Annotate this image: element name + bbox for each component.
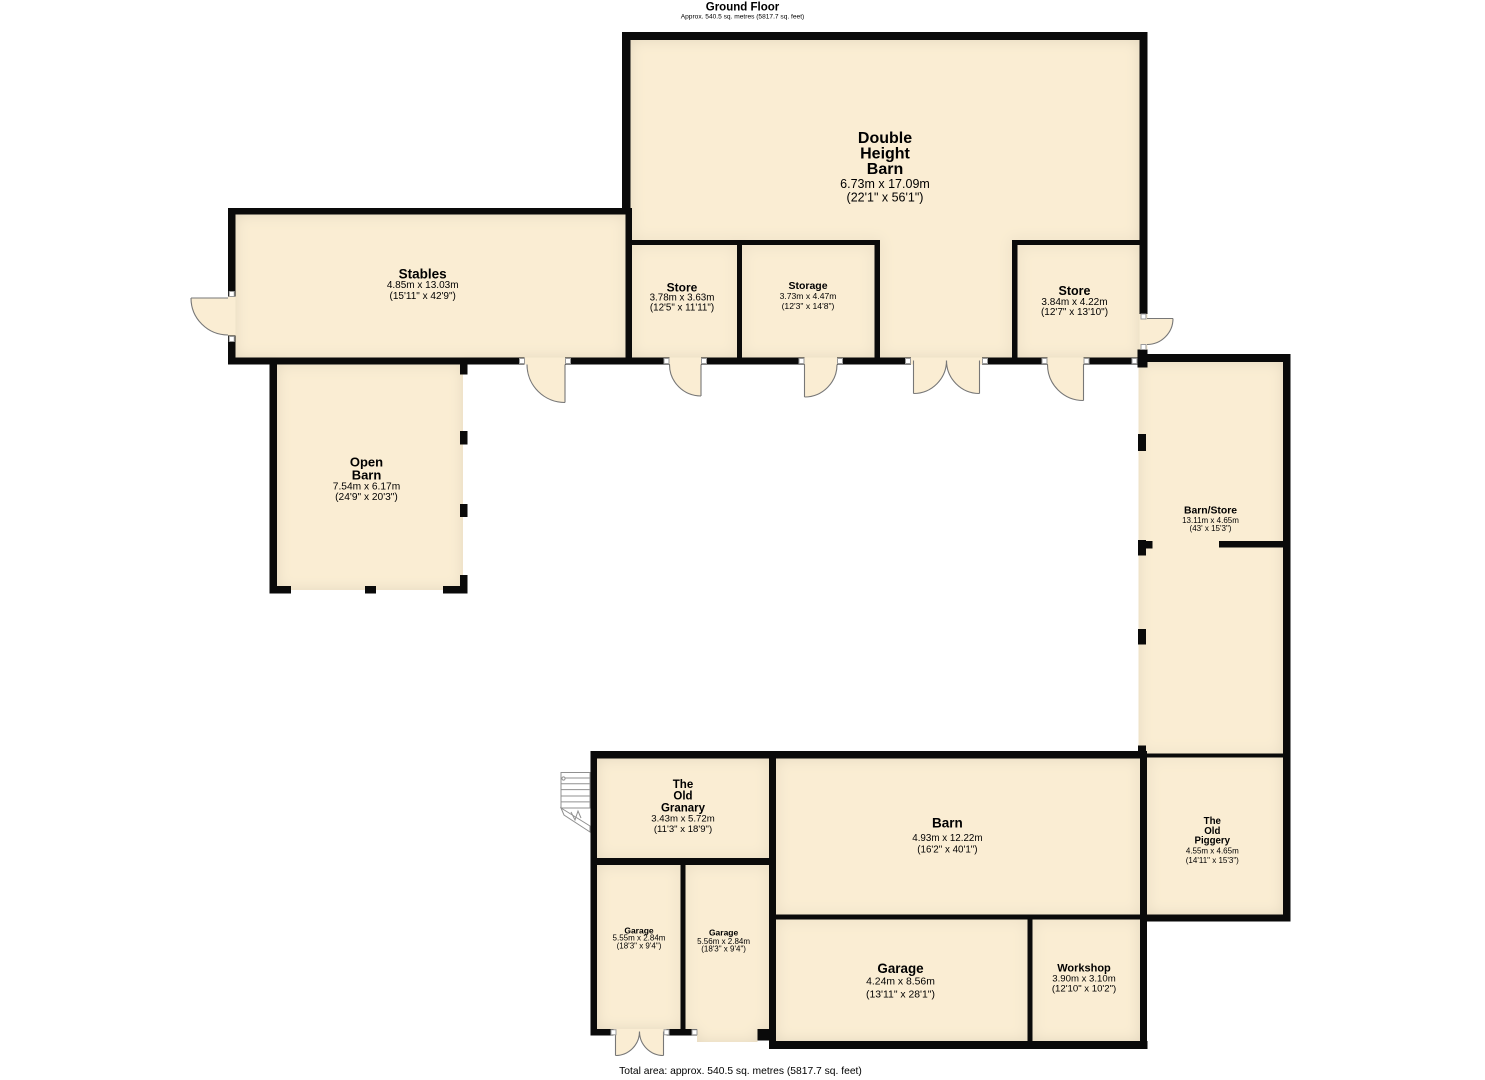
svg-text:Barn: Barn <box>932 815 963 830</box>
svg-text:Old: Old <box>673 791 692 803</box>
svg-text:Double: Double <box>858 130 912 147</box>
svg-text:3.73m x 4.47m: 3.73m x 4.47m <box>780 291 837 301</box>
svg-text:(13'11" x 28'1"): (13'11" x 28'1") <box>866 990 935 1001</box>
svg-text:4.93m x 12.22m: 4.93m x 12.22m <box>912 833 982 844</box>
svg-text:Piggery: Piggery <box>1195 835 1231 846</box>
svg-text:(43' x 15'3"): (43' x 15'3") <box>1190 524 1232 533</box>
svg-text:(16'2" x 40'1"): (16'2" x 40'1") <box>917 845 977 856</box>
svg-text:6.73m x 17.09m: 6.73m x 17.09m <box>840 177 930 191</box>
svg-text:3.43m x 5.72m: 3.43m x 5.72m <box>651 814 714 825</box>
svg-text:4.24m x 8.56m: 4.24m x 8.56m <box>866 977 935 988</box>
svg-text:4.85m x 13.03m: 4.85m x 13.03m <box>387 280 459 291</box>
svg-text:(18'3" x 9'4"): (18'3" x 9'4") <box>617 942 662 951</box>
svg-text:(12'5" x 11'11"): (12'5" x 11'11") <box>650 303 714 314</box>
svg-text:(18'3" x 9'4"): (18'3" x 9'4") <box>701 945 746 954</box>
svg-text:(12'10" x 10'2"): (12'10" x 10'2") <box>1052 983 1116 994</box>
svg-text:Approx. 540.5 sq. metres (5817: Approx. 540.5 sq. metres (5817.7 sq. fee… <box>681 13 805 20</box>
svg-text:(11'3" x 18'9"): (11'3" x 18'9") <box>654 824 712 835</box>
svg-text:Height: Height <box>860 146 910 163</box>
svg-text:Ground Floor: Ground Floor <box>706 2 780 14</box>
svg-text:The: The <box>673 779 693 791</box>
svg-text:(24'9" x 20'3"): (24'9" x 20'3") <box>335 492 398 503</box>
svg-text:(12'7" x 13'10"): (12'7" x 13'10") <box>1041 307 1108 318</box>
svg-text:Storage: Storage <box>788 280 827 292</box>
svg-text:Barn: Barn <box>352 468 382 483</box>
svg-text:Total area: approx. 540.5 sq.: Total area: approx. 540.5 sq. metres (58… <box>619 1066 862 1077</box>
svg-text:(15'11" x 42'9"): (15'11" x 42'9") <box>390 291 456 302</box>
svg-text:Garage: Garage <box>877 961 923 976</box>
svg-text:(22'1" x 56'1"): (22'1" x 56'1") <box>847 191 924 205</box>
svg-text:(14'11" x 15'3"): (14'11" x 15'3") <box>1186 856 1239 865</box>
svg-text:Barn: Barn <box>867 161 903 178</box>
svg-text:4.55m x 4.65m: 4.55m x 4.65m <box>1186 847 1239 856</box>
svg-text:Store: Store <box>1059 284 1091 298</box>
svg-text:(12'3" x 14'8"): (12'3" x 14'8") <box>782 301 835 311</box>
